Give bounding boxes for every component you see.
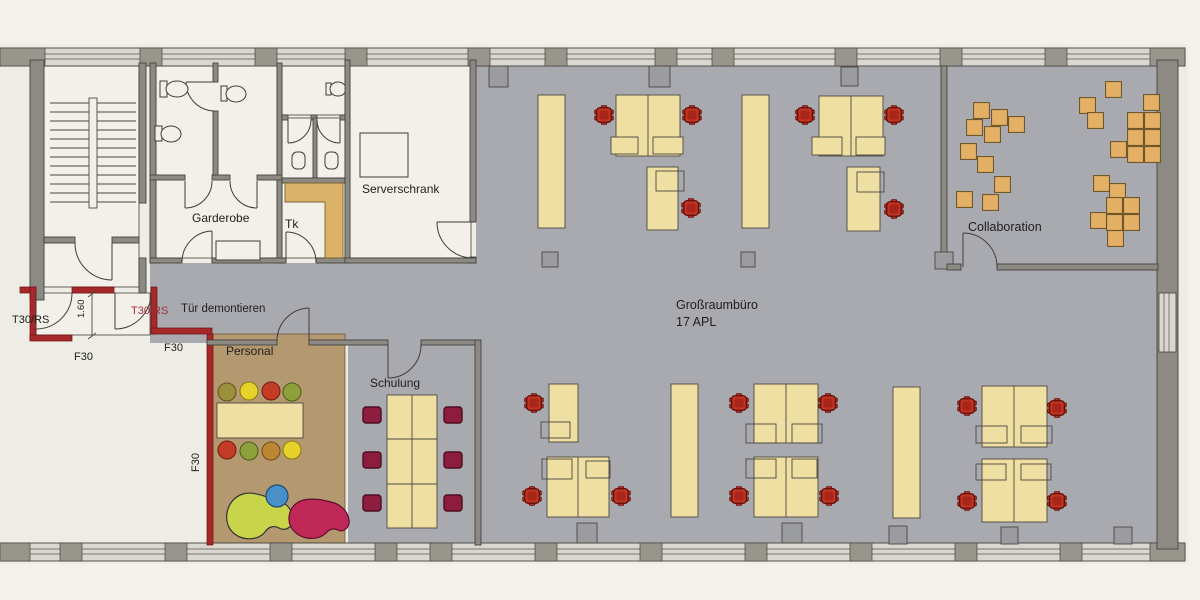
wc-left-wall [150, 63, 156, 263]
f30-label-3: F30 [190, 453, 202, 472]
f30-label-1: F30 [74, 351, 93, 363]
floorplan-photo: Garderobe Tk Serverschrank [0, 0, 1200, 600]
remove-door-note: Tür demontieren [181, 303, 265, 315]
training-chair [363, 407, 381, 423]
server-cabinet [360, 133, 408, 177]
collab-cube [995, 177, 1011, 193]
schulung-right-wall [475, 340, 481, 545]
collab-cube [1091, 213, 1107, 229]
collab-cube [1107, 198, 1123, 214]
office-chair [683, 106, 702, 125]
office-chair [523, 487, 542, 506]
collab-cube [992, 110, 1008, 126]
collab-cube [1145, 113, 1161, 129]
office-chair [730, 394, 749, 413]
right-wall-window [1159, 293, 1176, 352]
storage-cabinet [671, 384, 698, 517]
grossraumbuero-label: Großraumbüro [676, 298, 758, 312]
office-chair [958, 492, 977, 511]
office-chair [796, 106, 815, 125]
collaboration-label: Collaboration [968, 220, 1042, 234]
drawer-unit [812, 137, 842, 155]
collab-cube [1106, 82, 1122, 98]
collab-cube [1124, 198, 1140, 214]
office-chair [820, 487, 839, 506]
stair-stringer [89, 98, 97, 208]
stairwell-right-wall [139, 63, 146, 203]
collab-cube [1088, 113, 1104, 129]
apl-label: 17 APL [676, 315, 716, 329]
exterior-wall-top [0, 48, 1185, 66]
desk-pair [982, 386, 1047, 447]
personal-table [217, 403, 303, 438]
toilet-icon [155, 126, 181, 142]
office-chair [1048, 492, 1067, 511]
tk-label: Tk [285, 217, 299, 231]
office-chair [885, 200, 904, 219]
desk-single [647, 167, 678, 230]
personal-label: Personal [226, 344, 273, 358]
dimension-label: 1.60 [76, 300, 87, 319]
bean-bag-blue [266, 485, 288, 507]
collab-cube [1128, 130, 1144, 146]
t30rs-label-1: T30/RS [12, 314, 49, 326]
collab-cube [1111, 142, 1127, 158]
collab-cube [1128, 113, 1144, 129]
collab-cube [1144, 95, 1160, 111]
training-chair [444, 407, 462, 423]
office-chair [730, 487, 749, 506]
collab-cube [978, 157, 994, 173]
toilet-icon [160, 81, 188, 97]
top-wall-band [0, 48, 1185, 66]
drawer-unit [611, 137, 638, 154]
storage-cabinet [893, 387, 920, 518]
office-chair [1048, 399, 1067, 418]
collab-cube [1108, 231, 1124, 247]
collab-cube [1145, 130, 1161, 146]
collab-cube [1128, 147, 1144, 163]
floorplan-drawing: Garderobe Tk Serverschrank [0, 0, 1200, 600]
office-chair [682, 199, 701, 218]
collab-cube [974, 103, 990, 119]
f30-wall-personal [207, 334, 213, 545]
collab-cube [967, 120, 983, 136]
drawer-unit [653, 137, 683, 154]
collab-cube [961, 144, 977, 160]
storage-cabinet [538, 95, 565, 228]
schulung-label: Schulung [370, 376, 420, 390]
collab-cube [1145, 147, 1161, 163]
desk-pair [982, 459, 1047, 522]
storage-cabinet [742, 95, 769, 228]
garderobe-bench [216, 241, 260, 260]
office-chair [612, 487, 631, 506]
stairwell-right-wall-lower [139, 258, 146, 293]
collab-cube [1124, 215, 1140, 231]
exterior-wall-bottom [0, 543, 1185, 561]
collab-cube [1009, 117, 1025, 133]
training-table [387, 395, 437, 528]
t30rs-label-2: T30/RS [131, 305, 168, 317]
collab-cube [985, 127, 1001, 143]
training-chair [363, 452, 381, 468]
desk-single [549, 384, 578, 442]
collab-cube [957, 192, 973, 208]
office-chair [958, 397, 977, 416]
toilet-icon [326, 82, 346, 96]
collab-cube [1107, 215, 1123, 231]
exterior-wall-left [30, 60, 44, 300]
desk-single [847, 167, 880, 231]
sink-icon [292, 152, 305, 169]
f30-label-2: F30 [164, 342, 183, 354]
office-chair [885, 106, 904, 125]
toilet-icon [221, 86, 246, 102]
sink-icon [325, 152, 338, 169]
collab-cube [983, 195, 999, 211]
serverschrank-label: Serverschrank [362, 182, 440, 196]
office-chair [595, 106, 614, 125]
drawer-unit [856, 137, 885, 155]
office-chair [525, 394, 544, 413]
collaboration-left-wall [941, 66, 947, 256]
training-chair [444, 495, 462, 511]
office-chair [819, 394, 838, 413]
training-chair [444, 452, 462, 468]
garderobe-label: Garderobe [192, 211, 250, 225]
collab-cube [1080, 98, 1096, 114]
collab-cube [1094, 176, 1110, 192]
wc-center-wall [277, 63, 282, 263]
training-chair [363, 495, 381, 511]
